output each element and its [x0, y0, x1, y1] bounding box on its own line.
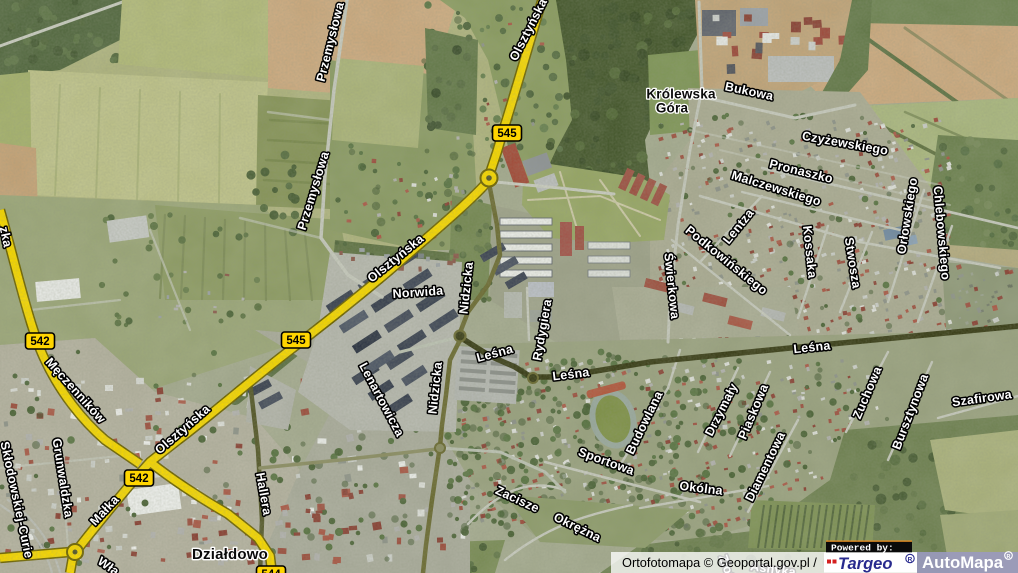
svg-text:542: 542 — [30, 336, 49, 348]
svg-text:545: 545 — [286, 335, 306, 347]
svg-text:Królewska: Królewska — [646, 87, 716, 102]
svg-text:Powered by:: Powered by: — [831, 543, 894, 554]
svg-text:545: 545 — [497, 128, 517, 140]
svg-text:R: R — [1007, 554, 1011, 560]
svg-text:Działdowo: Działdowo — [192, 546, 268, 563]
svg-text:544: 544 — [261, 569, 281, 573]
svg-text:R: R — [908, 557, 913, 564]
svg-text:Ortofotomapa © Geoportal.gov.p: Ortofotomapa © Geoportal.gov.pl / — [622, 555, 817, 570]
svg-text:Targeo: Targeo — [838, 555, 892, 573]
svg-text:542: 542 — [129, 473, 148, 485]
svg-text:AutoMapa: AutoMapa — [922, 553, 1004, 572]
svg-text:Góra: Góra — [656, 101, 689, 116]
